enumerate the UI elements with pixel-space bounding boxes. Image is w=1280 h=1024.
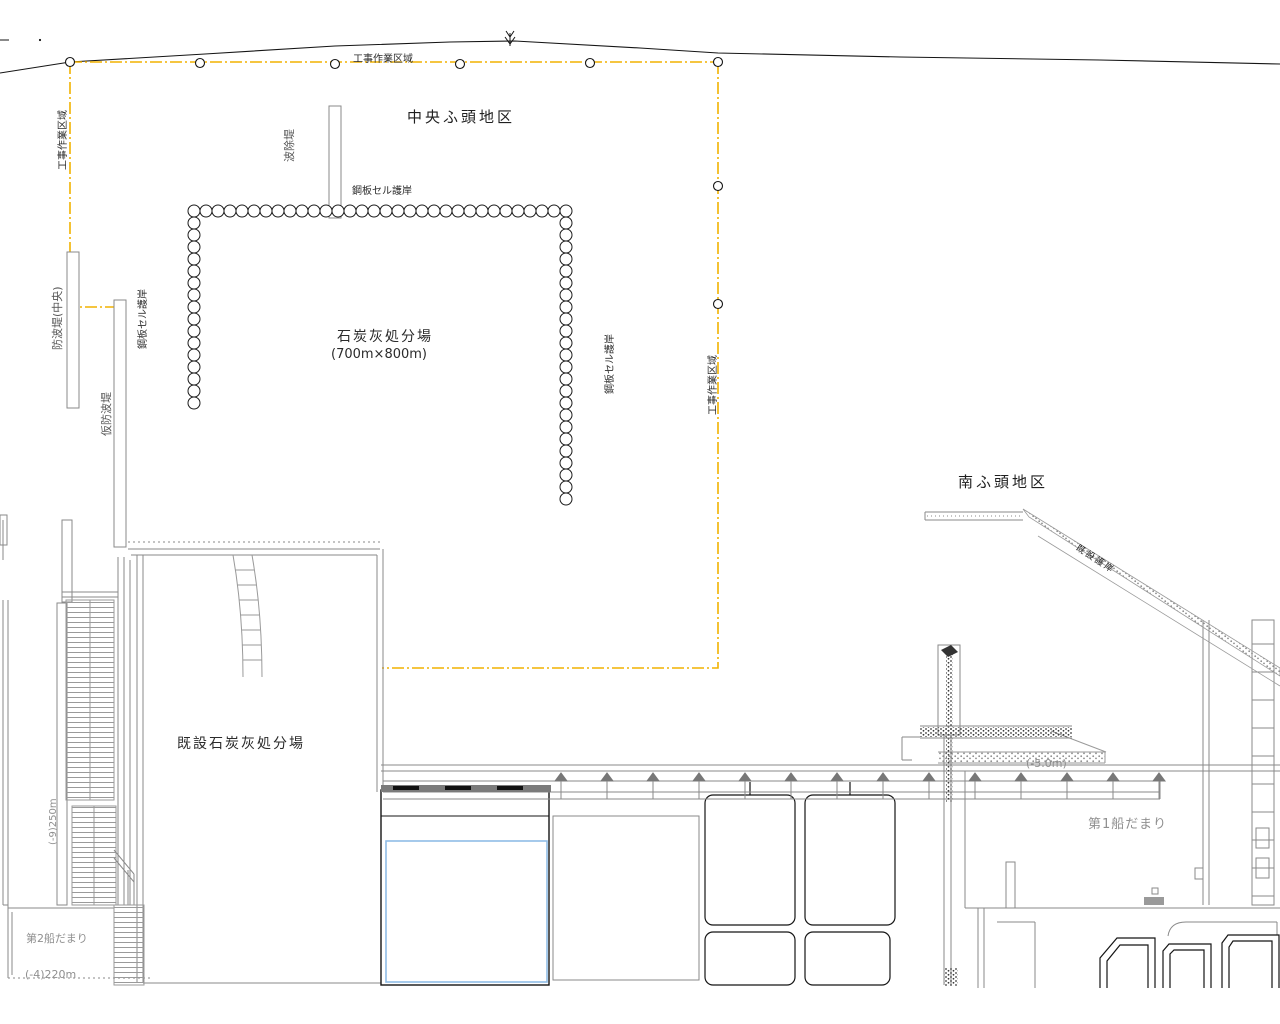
label-breakwater-central: 防波堤(中央)	[49, 286, 65, 350]
coal-pier-deck	[920, 727, 1072, 737]
label-disposal-site: 石炭灰処分場	[337, 326, 433, 346]
breakwater-central-structure	[67, 252, 79, 408]
central-cells	[381, 790, 699, 985]
west-berth-complex	[0, 515, 134, 908]
label-south-wharf-district: 南ふ頭地区	[958, 471, 1048, 492]
label-boat-basin-1: 第1船だまり	[1088, 813, 1167, 832]
label-central-wharf-district: 中央ふ頭地区	[407, 106, 515, 127]
label-cell-quay-top: 鋼板セル護岸	[352, 182, 412, 197]
pond-outline-blue	[386, 841, 547, 982]
wave-screen-structure	[329, 106, 341, 218]
boat-basin-1-structure	[381, 620, 1280, 988]
label-temp-breakwater: 仮防波堤	[98, 392, 114, 436]
settling-ponds	[705, 782, 895, 985]
north-arrow-mark	[505, 31, 515, 46]
boat-slips	[1100, 935, 1279, 988]
work-area-boundary	[70, 62, 718, 668]
drawing-canvas: 中央ふ頭地区 工事作業区域 工事作業区域 工事作業区域 鋼板セル護岸 鋼板セル護…	[0, 0, 1280, 1024]
temporary-breakwater-structure	[114, 300, 126, 547]
site-plan-drawing	[0, 0, 1280, 1024]
label-work-area-right: 工事作業区域	[704, 355, 719, 415]
label-wave-screen: 波除堤	[281, 129, 297, 162]
label-disposal-site-size: (700m×800m)	[331, 347, 427, 362]
south-wharf-revetment	[925, 509, 1280, 686]
label-berth-left-spec: (-9)250m	[48, 798, 59, 845]
label-existing-disposal-site: 既設石炭灰処分場	[177, 733, 305, 753]
coastline	[0, 31, 1280, 73]
label-basin1-depth: (-5.0m)	[1026, 757, 1067, 770]
label-cell-quay-left: 鋼板セル護岸	[134, 289, 149, 349]
label-work-area-top: 工事作業区域	[353, 50, 413, 65]
label-work-area-left: 工事作業区域	[54, 110, 69, 170]
label-basin2-spec: (-4)220m	[25, 968, 76, 981]
label-boat-basin-2: 第2船だまり	[26, 930, 88, 946]
existing-disposal-parcel	[118, 542, 383, 983]
label-cell-quay-right: 鋼板セル護岸	[601, 334, 616, 394]
